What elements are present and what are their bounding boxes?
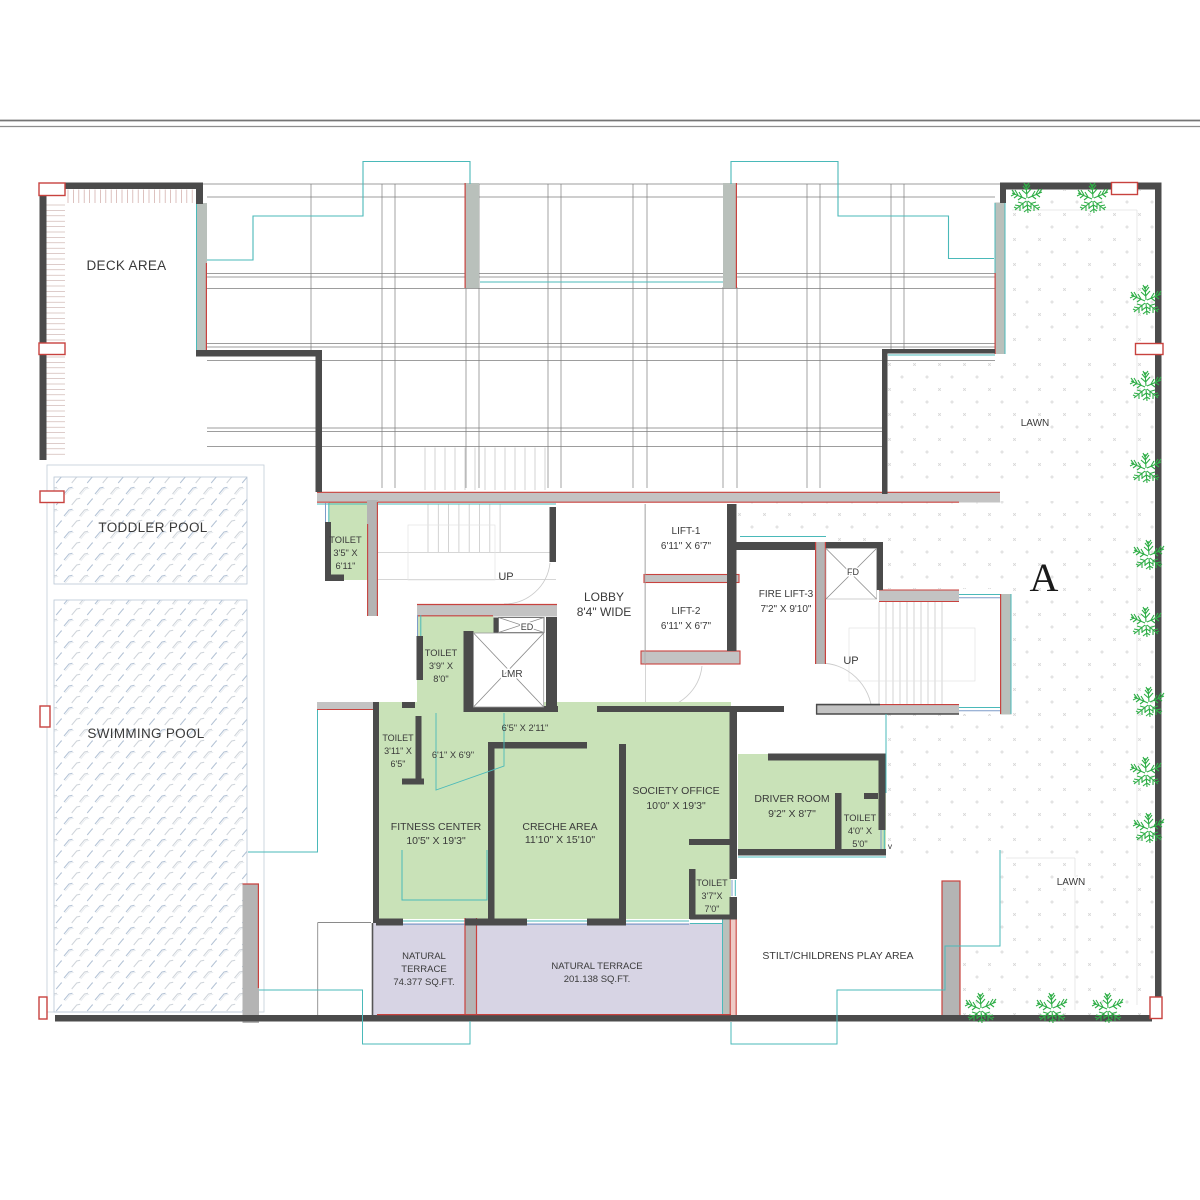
svg-text:7'0": 7'0"	[705, 904, 720, 914]
svg-text:A: A	[1030, 555, 1059, 600]
svg-text:201.138 SQ.FT.: 201.138 SQ.FT.	[564, 974, 631, 985]
svg-text:3'11" X: 3'11" X	[384, 746, 412, 756]
svg-text:LAWN: LAWN	[1057, 877, 1086, 888]
svg-text:11'10" X 15'10": 11'10" X 15'10"	[525, 834, 596, 846]
svg-text:ED: ED	[521, 622, 534, 632]
svg-text:LMR: LMR	[501, 669, 522, 680]
svg-text:STILT/CHILDRENS PLAY AREA: STILT/CHILDRENS PLAY AREA	[762, 950, 913, 962]
svg-text:3'5" X: 3'5" X	[333, 548, 357, 558]
svg-text:TOILET: TOILET	[696, 878, 728, 888]
svg-text:TOILET: TOILET	[329, 535, 362, 545]
svg-text:6'11" X 6'7": 6'11" X 6'7"	[661, 621, 712, 632]
svg-text:LAWN: LAWN	[1021, 418, 1050, 429]
svg-text:UP: UP	[843, 655, 858, 667]
svg-text:NATURAL: NATURAL	[402, 951, 446, 962]
svg-text:9'2" X 8'7": 9'2" X 8'7"	[768, 808, 816, 820]
svg-text:NATURAL TERRACE: NATURAL TERRACE	[551, 961, 642, 972]
svg-text:FD: FD	[847, 567, 859, 577]
svg-text:8'0": 8'0"	[433, 674, 448, 684]
svg-text:CRECHE AREA: CRECHE AREA	[522, 821, 597, 833]
svg-text:TERRACE: TERRACE	[401, 964, 446, 975]
svg-text:6'11" X 6'7": 6'11" X 6'7"	[661, 541, 712, 552]
svg-text:TOILET: TOILET	[382, 733, 414, 743]
svg-text:LIFT-2: LIFT-2	[672, 606, 701, 617]
svg-text:LOBBY: LOBBY	[584, 590, 624, 604]
svg-text:SOCIETY OFFICE: SOCIETY OFFICE	[632, 785, 719, 797]
svg-text:TOILET: TOILET	[425, 648, 458, 658]
svg-text:FIRE LIFT-3: FIRE LIFT-3	[759, 589, 814, 600]
svg-text:7'2" X 9'10": 7'2" X 9'10"	[761, 604, 812, 615]
svg-text:6'1" X 6'9": 6'1" X 6'9"	[432, 750, 474, 760]
svg-text:UP: UP	[498, 571, 513, 583]
svg-text:TODDLER POOL: TODDLER POOL	[98, 520, 207, 535]
svg-text:6'5" X 2'11": 6'5" X 2'11"	[502, 723, 549, 733]
svg-text:5'0": 5'0"	[852, 839, 867, 849]
svg-text:6'5": 6'5"	[391, 759, 406, 769]
svg-text:3'7"X: 3'7"X	[702, 891, 723, 901]
svg-text:6'11": 6'11"	[336, 561, 356, 571]
svg-text:FITNESS CENTER: FITNESS CENTER	[391, 821, 482, 833]
svg-text:SWIMMING POOL: SWIMMING POOL	[87, 726, 204, 741]
svg-text:DECK AREA: DECK AREA	[87, 258, 167, 273]
svg-text:TOILET: TOILET	[844, 813, 877, 823]
svg-text:8'4" WIDE: 8'4" WIDE	[577, 605, 632, 619]
svg-text:LIFT-1: LIFT-1	[672, 526, 701, 537]
svg-text:4'0" X: 4'0" X	[848, 826, 872, 836]
svg-text:10'5" X 19'3": 10'5" X 19'3"	[406, 835, 466, 847]
svg-text:3'9" X: 3'9" X	[429, 661, 453, 671]
svg-text:74.377 SQ.FT.: 74.377 SQ.FT.	[393, 977, 454, 988]
svg-text:10'0" X 19'3": 10'0" X 19'3"	[646, 800, 706, 812]
svg-text:DRIVER ROOM: DRIVER ROOM	[754, 793, 829, 805]
